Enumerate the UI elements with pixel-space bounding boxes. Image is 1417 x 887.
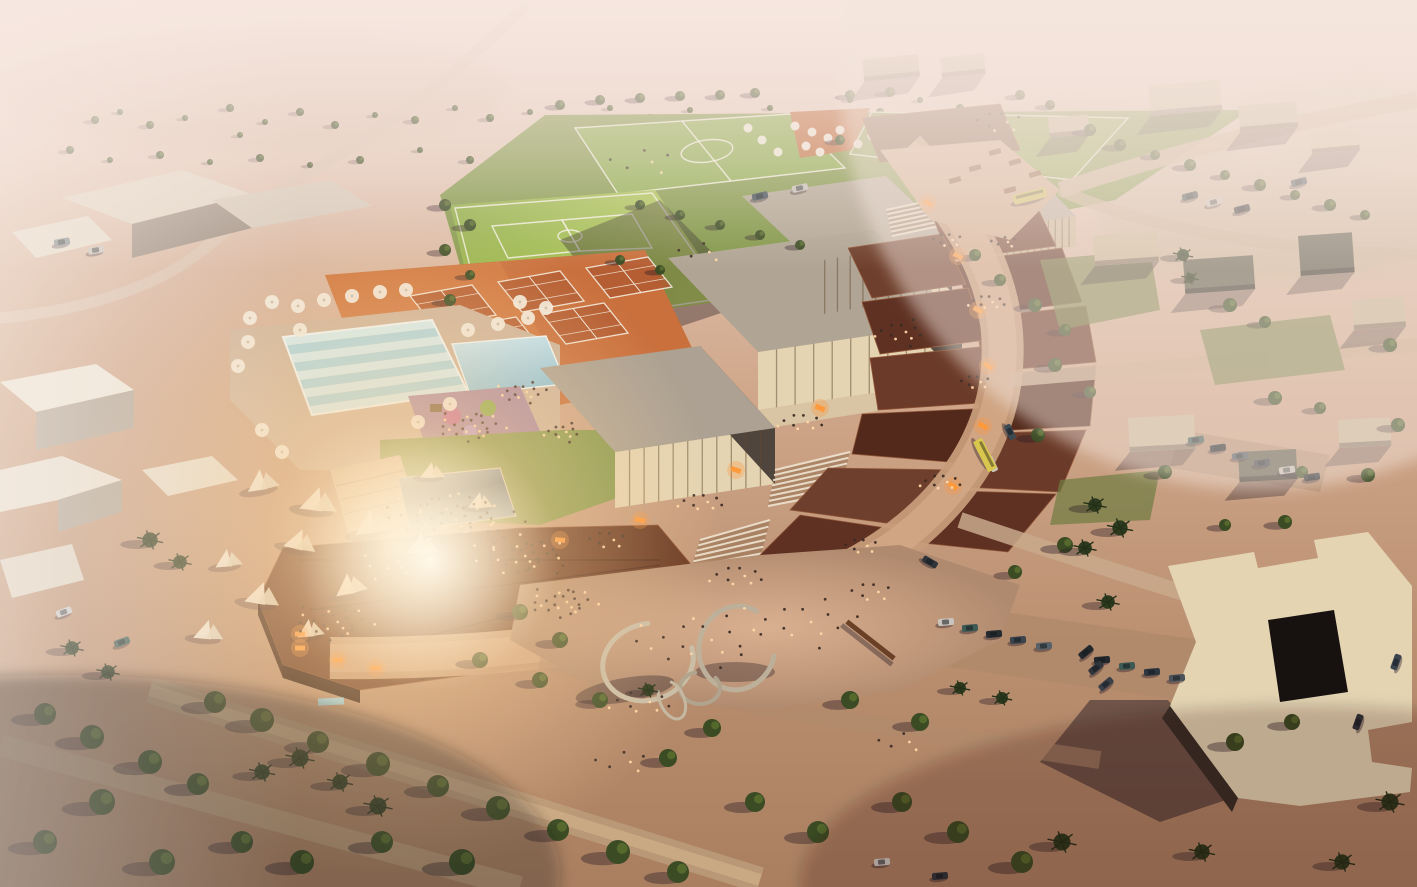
rendering-stage bbox=[0, 0, 1417, 887]
aerial-rendering bbox=[0, 0, 1417, 887]
inner-courtyard bbox=[1268, 610, 1348, 702]
sun-glare bbox=[300, 430, 560, 690]
